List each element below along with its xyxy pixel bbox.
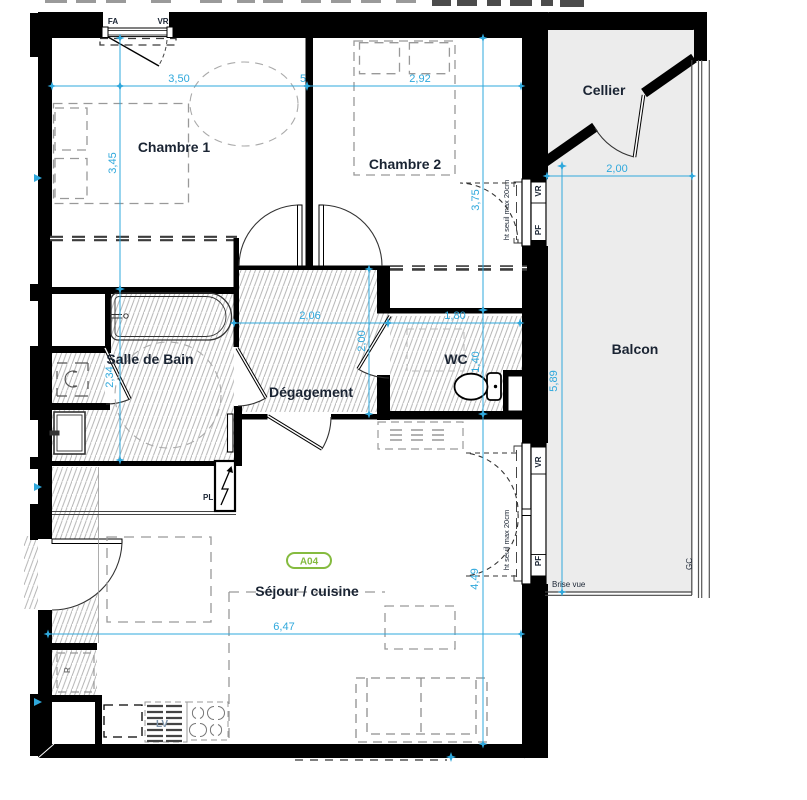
svg-text:3,75: 3,75 (470, 189, 482, 210)
svg-text:Brise vue: Brise vue (552, 580, 586, 589)
svg-text:2,34: 2,34 (104, 366, 116, 387)
svg-text:2,92: 2,92 (409, 73, 430, 85)
svg-text:WC: WC (444, 351, 467, 367)
svg-text:6,47: 6,47 (273, 621, 294, 633)
svg-text:2,00: 2,00 (356, 330, 368, 351)
svg-text:VR: VR (534, 185, 543, 196)
svg-text:5: 5 (300, 73, 306, 85)
svg-text:Cellier: Cellier (583, 82, 626, 98)
svg-text:Séjour / cuisine: Séjour / cuisine (255, 583, 359, 599)
svg-text:A04: A04 (300, 557, 319, 568)
svg-text:LV: LV (156, 719, 168, 730)
svg-text:GC: GC (685, 558, 694, 570)
svg-text:Balcon: Balcon (612, 341, 659, 357)
svg-text:2,06: 2,06 (299, 310, 320, 322)
svg-text:3,45: 3,45 (107, 152, 119, 173)
svg-text:ht seuil max 20cm: ht seuil max 20cm (502, 180, 511, 240)
svg-text:2,00: 2,00 (606, 163, 627, 175)
svg-text:4,49: 4,49 (469, 568, 481, 589)
svg-text:Chambre 2: Chambre 2 (369, 156, 442, 172)
svg-text:PL: PL (203, 493, 213, 502)
svg-text:VR: VR (534, 456, 543, 467)
svg-text:5,89: 5,89 (548, 370, 560, 391)
svg-text:Salle de Bain: Salle de Bain (106, 351, 193, 367)
svg-text:R: R (63, 667, 72, 673)
svg-text:1,80: 1,80 (444, 310, 465, 322)
svg-text:PF: PF (534, 556, 543, 566)
svg-text:FA: FA (108, 17, 118, 26)
svg-text:ht seuil max 20cm: ht seuil max 20cm (502, 510, 511, 570)
svg-text:3,50: 3,50 (168, 73, 189, 85)
svg-text:Dégagement: Dégagement (269, 384, 353, 400)
svg-text:VR: VR (157, 17, 168, 26)
svg-text:Chambre 1: Chambre 1 (138, 139, 211, 155)
svg-text:1,40: 1,40 (470, 351, 482, 372)
svg-text:PF: PF (534, 225, 543, 235)
